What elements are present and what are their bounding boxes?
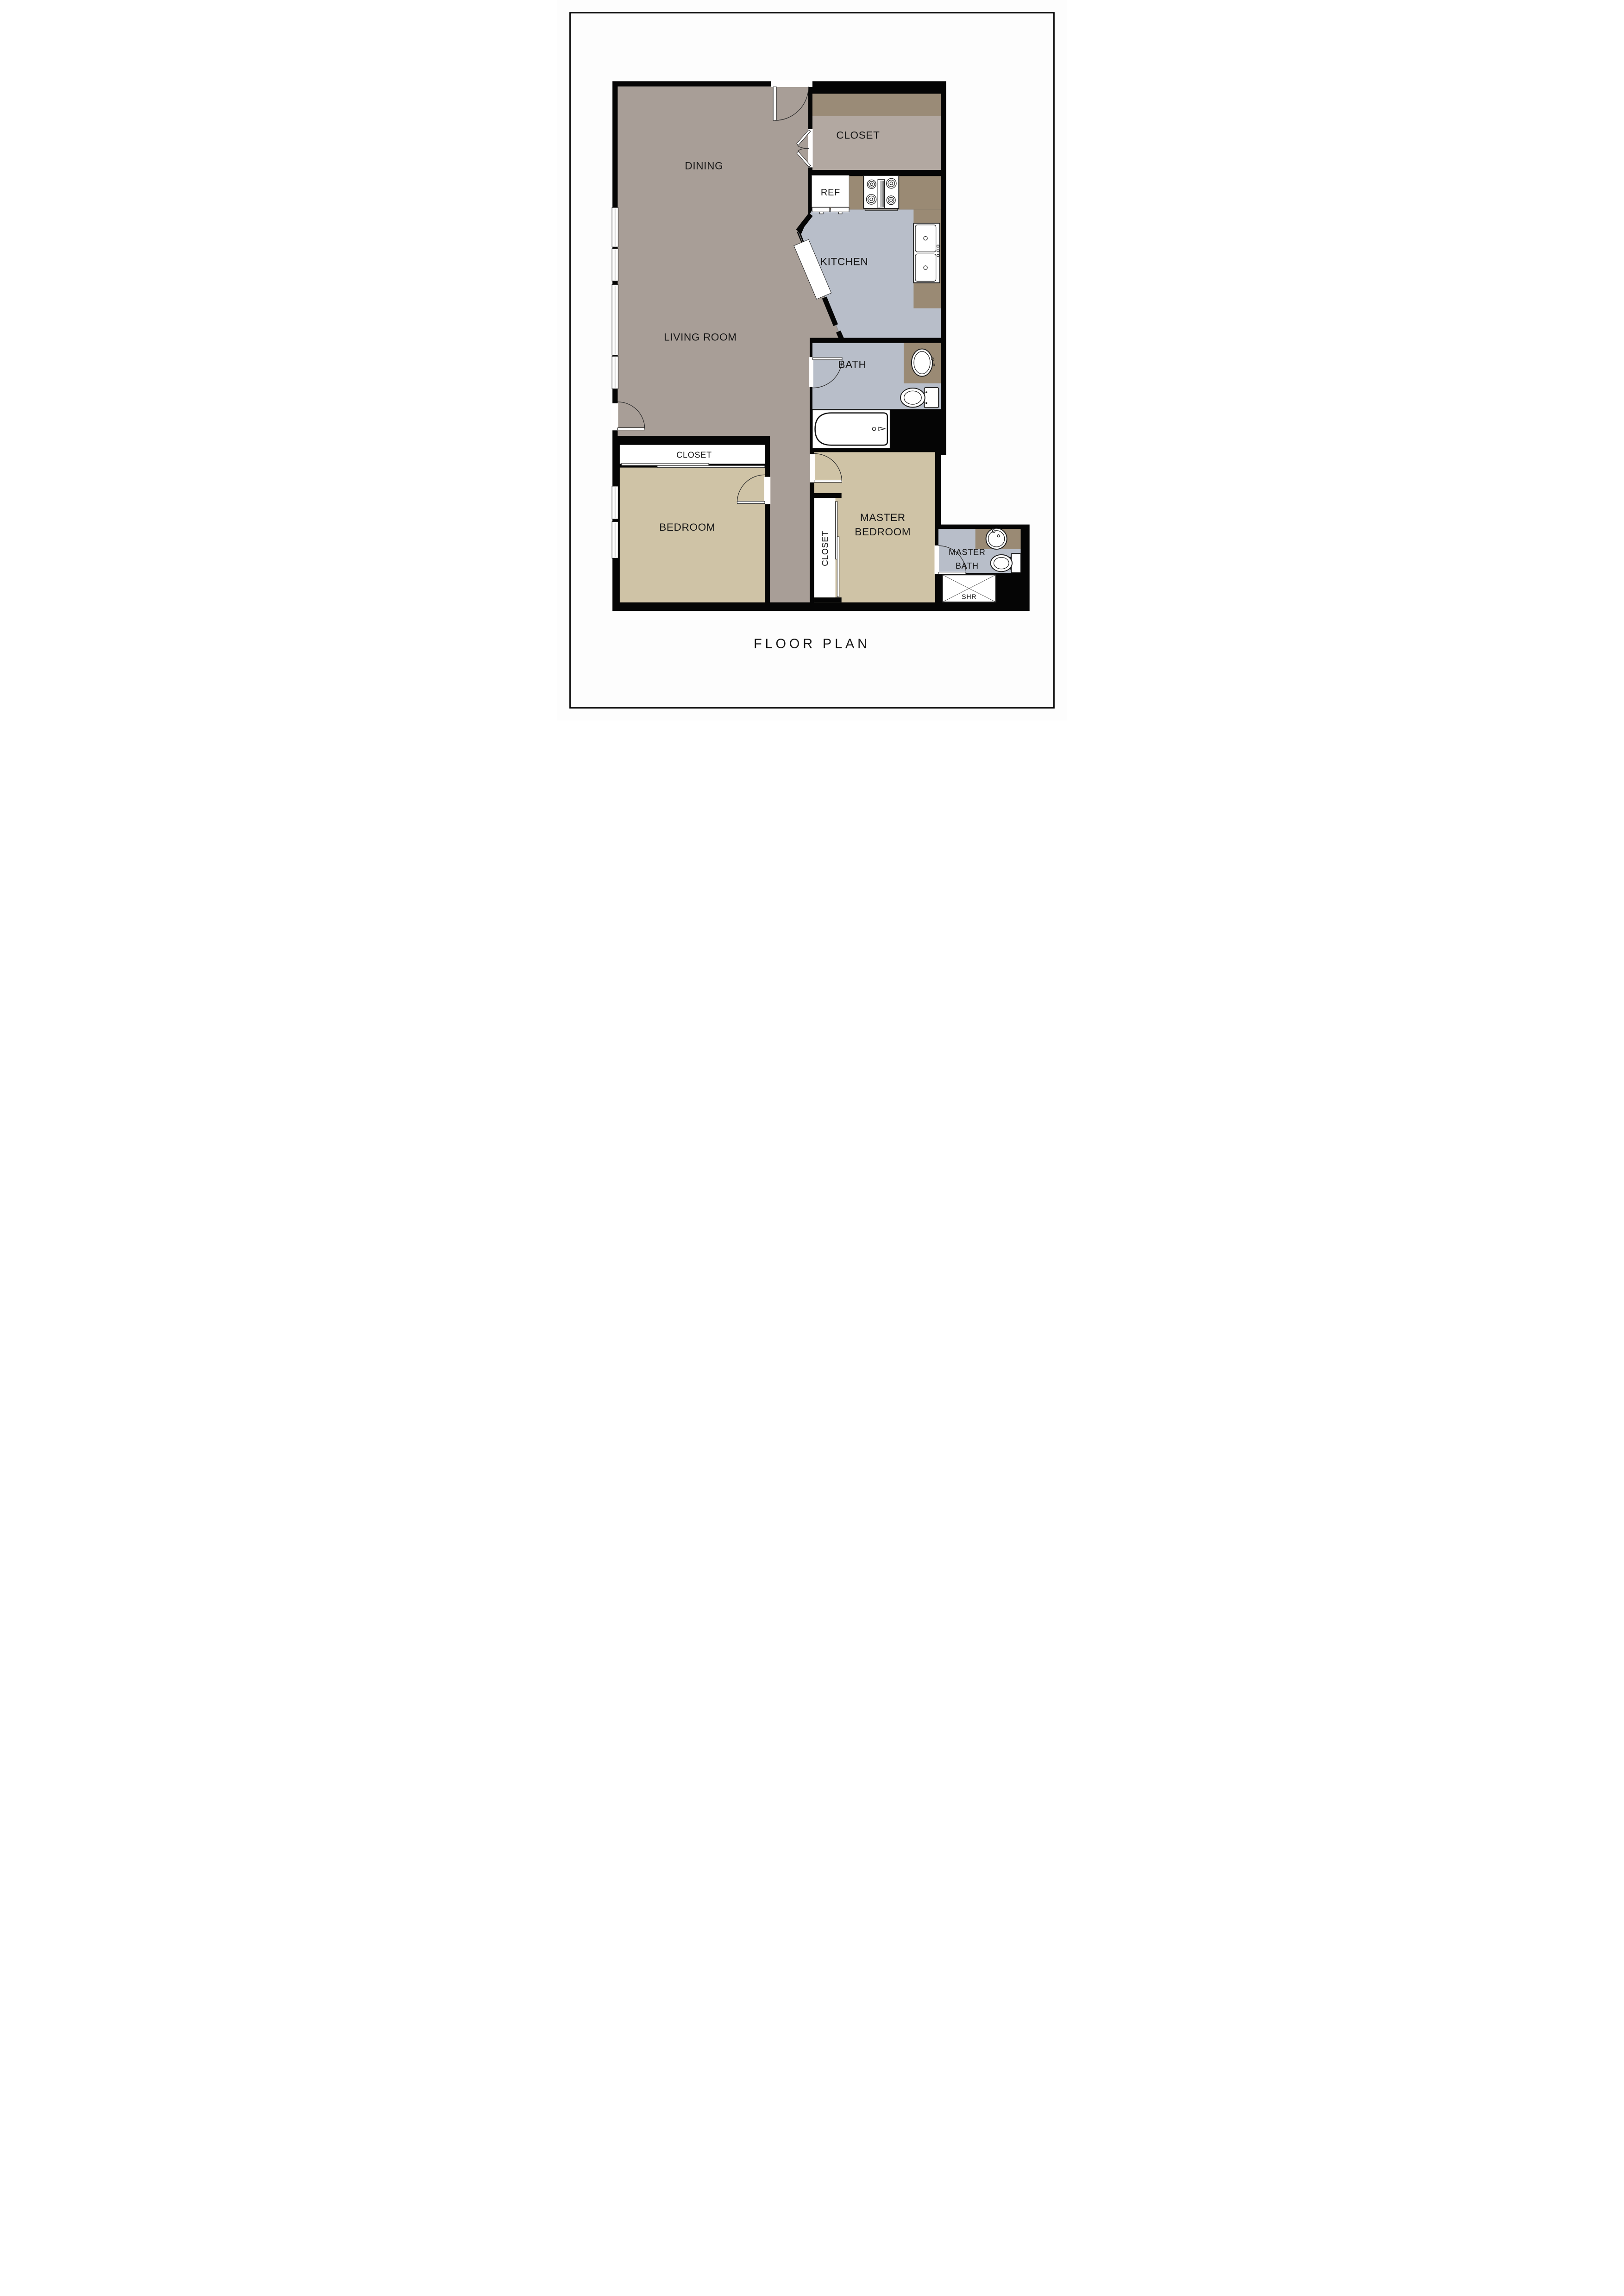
stove xyxy=(863,176,899,211)
room-bedroom-floor xyxy=(620,468,765,602)
room-entry-closet-floor xyxy=(812,116,941,170)
label-bedroom-closet: CLOSET xyxy=(676,450,712,459)
bath-toilet xyxy=(900,388,938,408)
kitchen-sink xyxy=(913,223,939,283)
label-master-bath-1: MASTER xyxy=(949,548,986,557)
shower: SHR xyxy=(942,575,995,602)
label-bedroom: BEDROOM xyxy=(659,521,715,533)
master-bath-toilet xyxy=(991,553,1021,572)
kitchen-wall-stub-corner xyxy=(838,332,842,339)
living-windows xyxy=(612,207,618,389)
shower-label: SHR xyxy=(962,593,976,601)
bedroom-windows xyxy=(612,486,618,558)
room-entry-closet-shelf xyxy=(812,94,941,116)
label-master-bath-2: BATH xyxy=(956,561,979,571)
floor-plan-drawing: REF xyxy=(612,81,1030,611)
label-living-room: LIVING ROOM xyxy=(664,332,736,343)
floor-plan-page: REF xyxy=(557,0,1067,721)
label-master-closet: CLOSET xyxy=(821,531,830,566)
label-master-bedroom-2: BEDROOM xyxy=(855,526,911,538)
label-bath: BATH xyxy=(838,358,866,370)
bathtub xyxy=(812,410,890,448)
refrigerator-label: REF xyxy=(821,188,840,198)
label-entry-closet: CLOSET xyxy=(836,130,880,141)
sheet-title: FLOOR PLAN xyxy=(754,636,870,651)
label-master-bedroom-1: MASTER xyxy=(860,512,906,523)
label-kitchen: KITCHEN xyxy=(820,256,869,268)
master-bath-sink xyxy=(986,528,1007,549)
label-dining: DINING xyxy=(685,160,723,172)
